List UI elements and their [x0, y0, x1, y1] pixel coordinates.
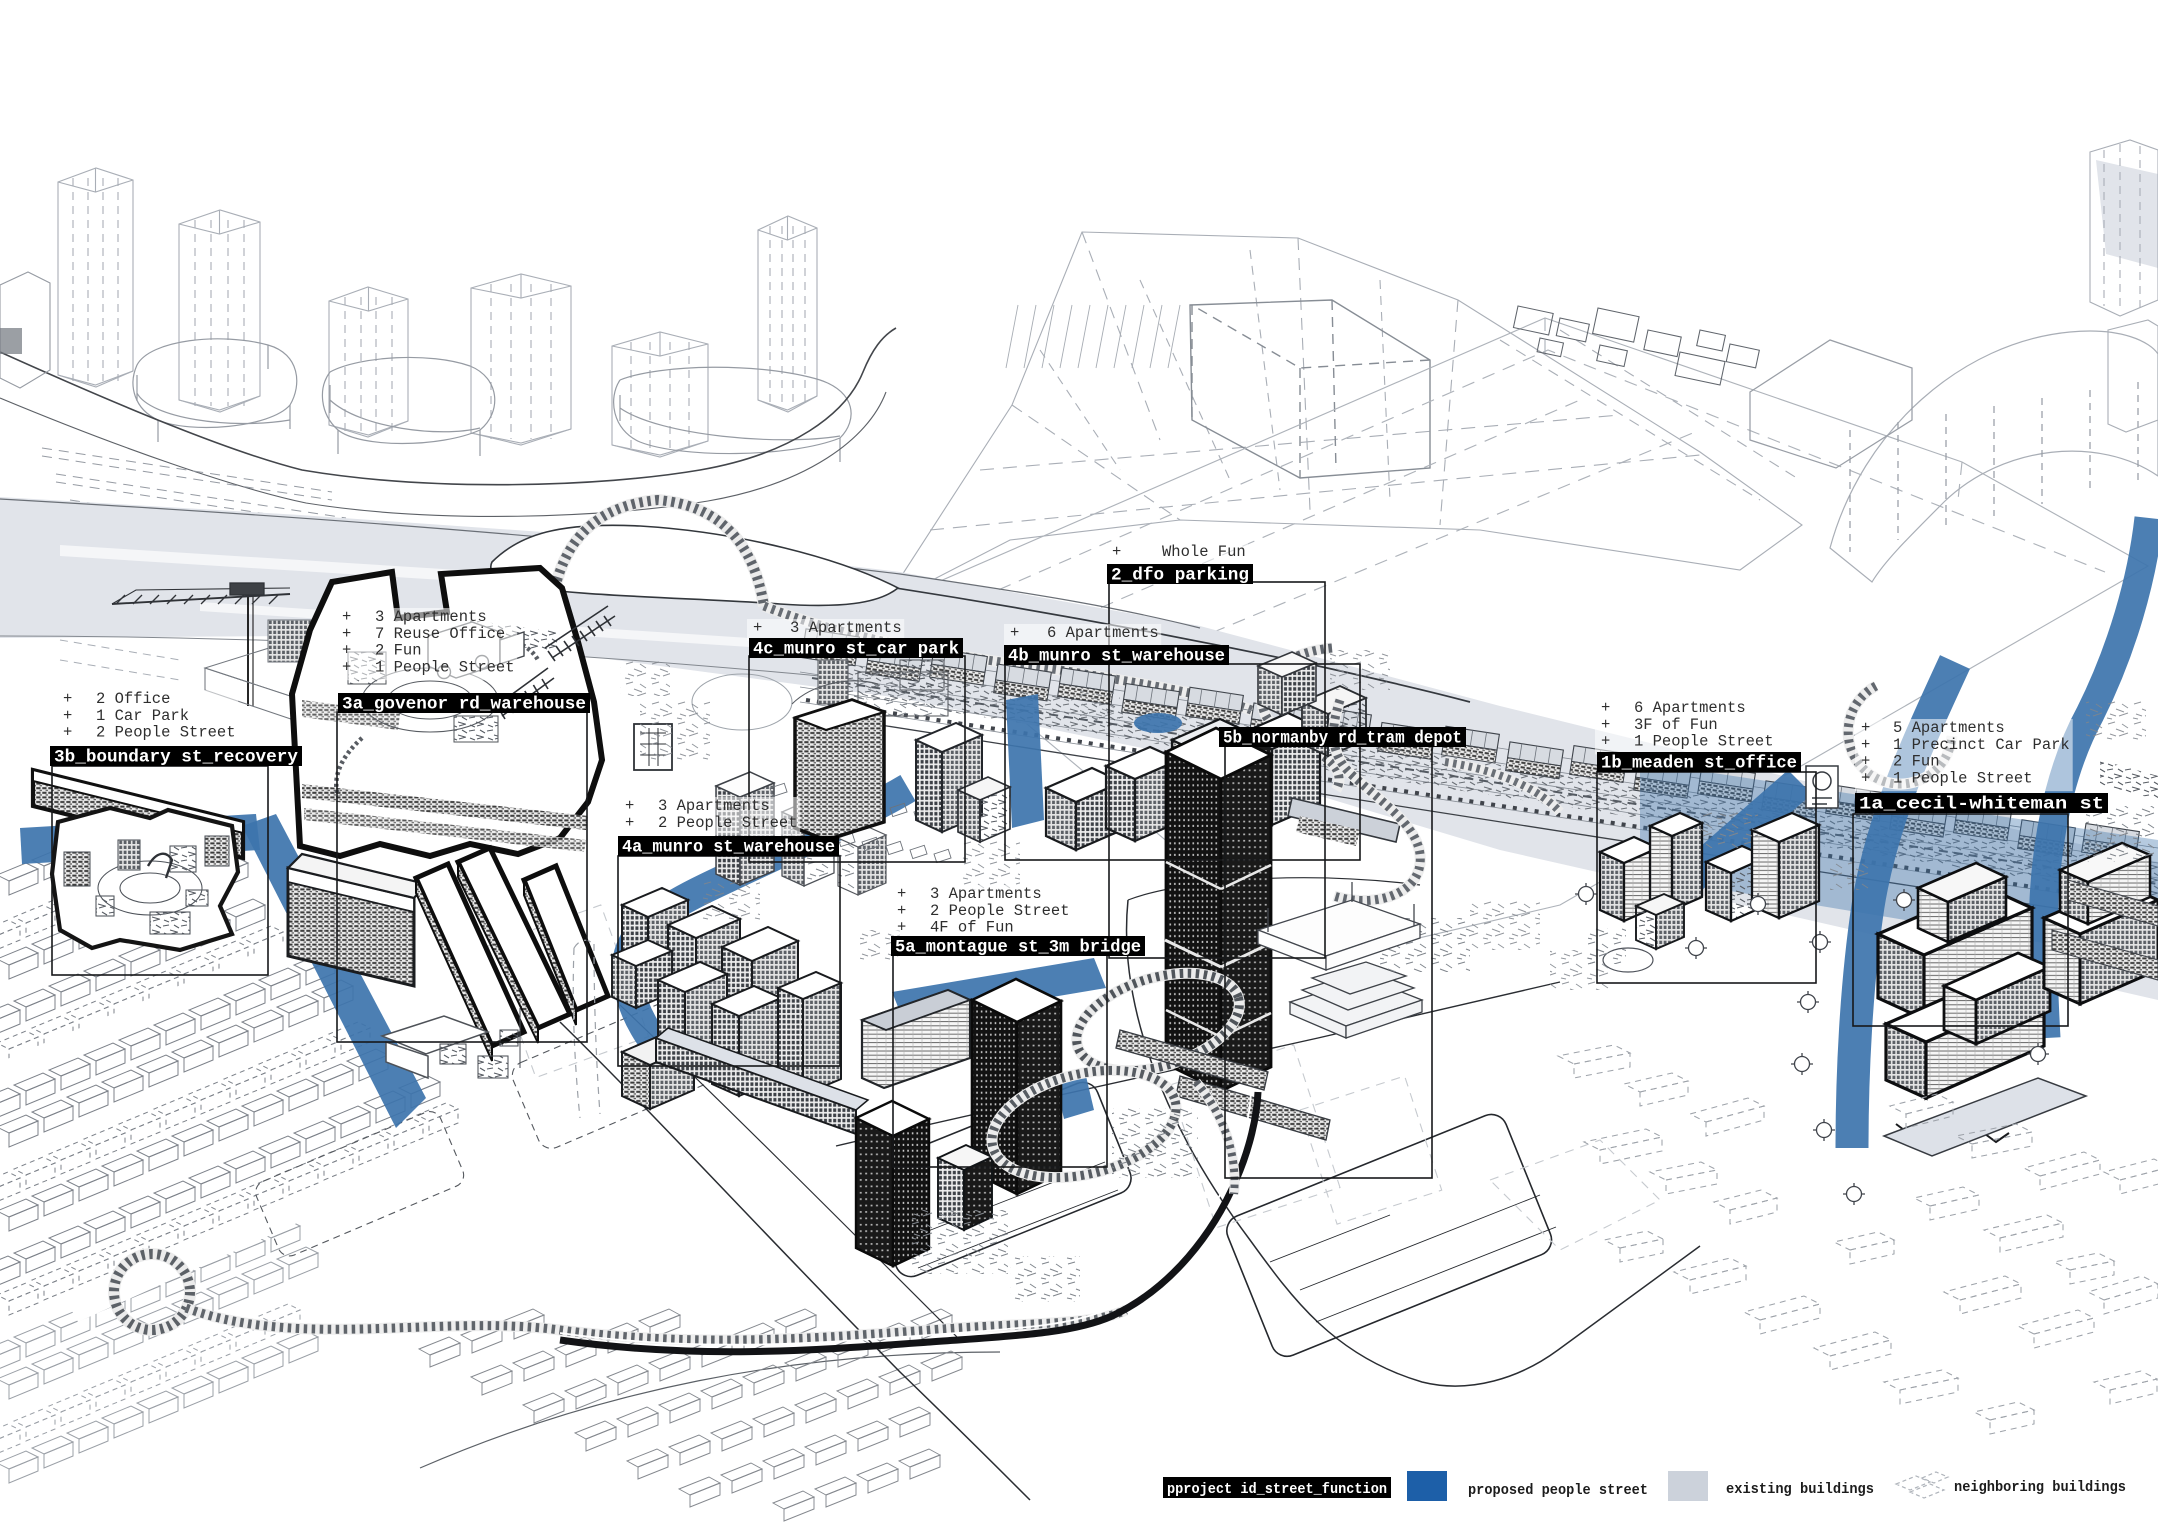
- svg-text:1 People Street: 1 People Street: [1893, 769, 2033, 787]
- svg-text:1 Car Park: 1 Car Park: [96, 707, 189, 725]
- svg-text:3 Apartments: 3 Apartments: [658, 797, 770, 815]
- svg-text:1a_cecil-whiteman st: 1a_cecil-whiteman st: [1859, 795, 2104, 815]
- svg-text:+: +: [1601, 699, 1610, 717]
- svg-text:4a_munro st_warehouse: 4a_munro st_warehouse: [622, 838, 835, 858]
- svg-text:4F of Fun: 4F of Fun: [930, 919, 1014, 937]
- svg-text:1 Precinct Car Park: 1 Precinct Car Park: [1893, 736, 2070, 754]
- svg-text:3 Apartments: 3 Apartments: [375, 608, 487, 626]
- svg-text:proposed people street: proposed people street: [1468, 1482, 1648, 1499]
- svg-text:+: +: [63, 707, 72, 725]
- svg-text:2 Fun: 2 Fun: [375, 642, 422, 660]
- svg-text:+: +: [342, 658, 351, 676]
- svg-text:+: +: [342, 608, 351, 626]
- svg-text:4b_munro st_warehouse: 4b_munro st_warehouse: [1008, 647, 1225, 667]
- svg-text:5a_montague st_3m bridge: 5a_montague st_3m bridge: [895, 938, 1141, 958]
- svg-text:+: +: [625, 814, 634, 832]
- svg-text:+: +: [1861, 719, 1870, 737]
- svg-text:+: +: [342, 625, 351, 643]
- svg-text:+: +: [63, 724, 72, 742]
- svg-text:+: +: [897, 885, 906, 903]
- svg-text:2 People Street: 2 People Street: [658, 814, 798, 832]
- svg-text:+: +: [1112, 543, 1121, 561]
- svg-text:1 People Street: 1 People Street: [375, 658, 515, 676]
- svg-text:3b_boundary st_recovery: 3b_boundary st_recovery: [54, 748, 298, 768]
- svg-text:+: +: [625, 797, 634, 815]
- svg-text:5b_normanby rd_tram depot: 5b_normanby rd_tram depot: [1223, 729, 1462, 749]
- svg-text:+: +: [342, 642, 351, 660]
- svg-text:3a_govenor rd_warehouse: 3a_govenor rd_warehouse: [342, 695, 586, 715]
- svg-text:+: +: [1861, 736, 1870, 754]
- svg-text:3 Apartments: 3 Apartments: [790, 619, 902, 637]
- svg-text:2 Fun: 2 Fun: [1893, 753, 1940, 771]
- svg-text:6 Apartments: 6 Apartments: [1634, 699, 1746, 717]
- svg-text:existing buildings: existing buildings: [1726, 1481, 1874, 1498]
- svg-text:5 Apartments: 5 Apartments: [1893, 719, 2005, 737]
- svg-text:2 Office: 2 Office: [96, 690, 170, 708]
- svg-text:1 People Street: 1 People Street: [1634, 733, 1774, 751]
- svg-text:pproject id_street_function: pproject id_street_function: [1167, 1482, 1387, 1498]
- svg-text:1b_meaden st_office: 1b_meaden st_office: [1601, 754, 1797, 774]
- svg-text:+: +: [1601, 733, 1610, 751]
- svg-text:+: +: [1861, 753, 1870, 771]
- svg-text:2 People Street: 2 People Street: [96, 724, 236, 742]
- svg-text:+: +: [1861, 769, 1870, 787]
- svg-text:6 Apartments: 6 Apartments: [1047, 624, 1159, 642]
- svg-text:3F of Fun: 3F of Fun: [1634, 716, 1718, 734]
- svg-text:2 People Street: 2 People Street: [930, 902, 1070, 920]
- svg-text:+: +: [753, 619, 762, 637]
- svg-text:+: +: [897, 902, 906, 920]
- svg-text:+: +: [1601, 716, 1610, 734]
- svg-text:neighboring buildings: neighboring buildings: [1954, 1479, 2126, 1496]
- svg-text:+: +: [897, 919, 906, 937]
- svg-text:4c_munro st_car park: 4c_munro st_car park: [753, 640, 959, 660]
- svg-text:3 Apartments: 3 Apartments: [930, 885, 1042, 903]
- svg-text:Whole Fun: Whole Fun: [1162, 543, 1246, 561]
- svg-text:+: +: [63, 690, 72, 708]
- svg-text:2_dfo parking: 2_dfo parking: [1111, 566, 1249, 586]
- svg-text:+: +: [1010, 624, 1019, 642]
- svg-text:7 Reuse Office: 7 Reuse Office: [375, 625, 505, 643]
